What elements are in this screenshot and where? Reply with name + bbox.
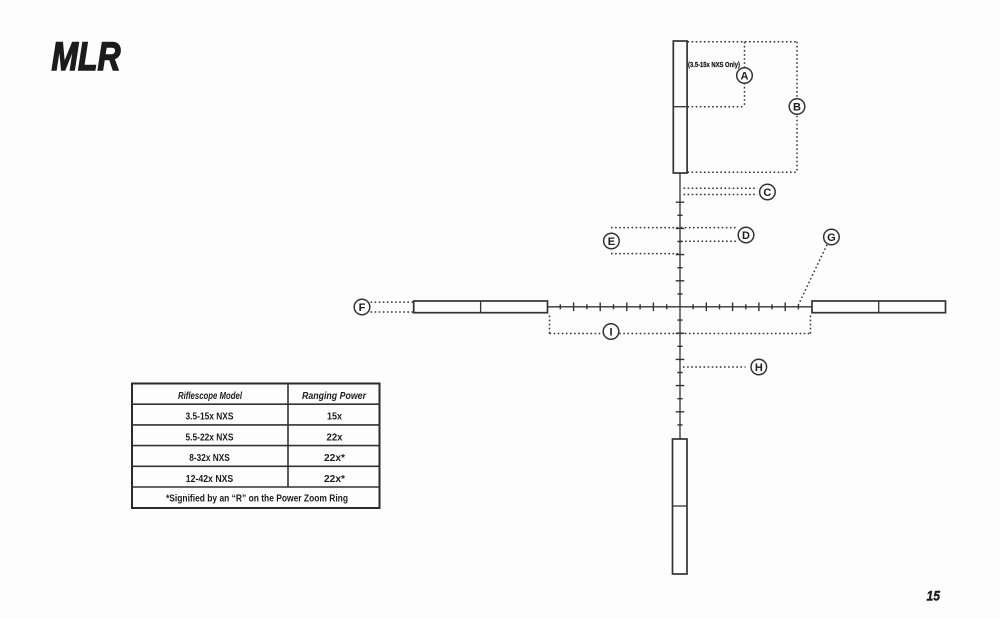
svg-text:A: A [741,71,749,83]
svg-text:3.5-15x NXS: 3.5-15x NXS [186,412,234,423]
svg-text:MLR: MLR [52,35,121,79]
svg-text:C: C [763,187,771,199]
svg-text:22x: 22x [327,432,343,443]
svg-text:F: F [359,302,366,314]
svg-text:12-42x NXS: 12-42x NXS [186,474,234,485]
svg-text:Ranging Power: Ranging Power [302,391,367,402]
svg-text:D: D [742,230,750,242]
svg-text:(3.5-15x NXS Only): (3.5-15x NXS Only) [688,60,740,69]
svg-text:H: H [755,362,763,374]
svg-text:15: 15 [927,589,941,604]
svg-text:22x*: 22x* [324,474,345,485]
svg-text:22x*: 22x* [324,453,345,464]
svg-text:8-32x NXS: 8-32x NXS [189,453,230,464]
svg-text:E: E [608,236,615,248]
svg-text:B: B [793,102,801,114]
svg-text:Riflescope Model: Riflescope Model [178,391,242,402]
svg-text:15x: 15x [327,412,342,423]
svg-text:*Signified by an “R” on the Po: *Signified by an “R” on the Power Zoom R… [166,494,348,505]
svg-text:G: G [827,232,836,244]
svg-text:I: I [609,327,612,339]
svg-text:5.5-22x NXS: 5.5-22x NXS [186,432,234,443]
